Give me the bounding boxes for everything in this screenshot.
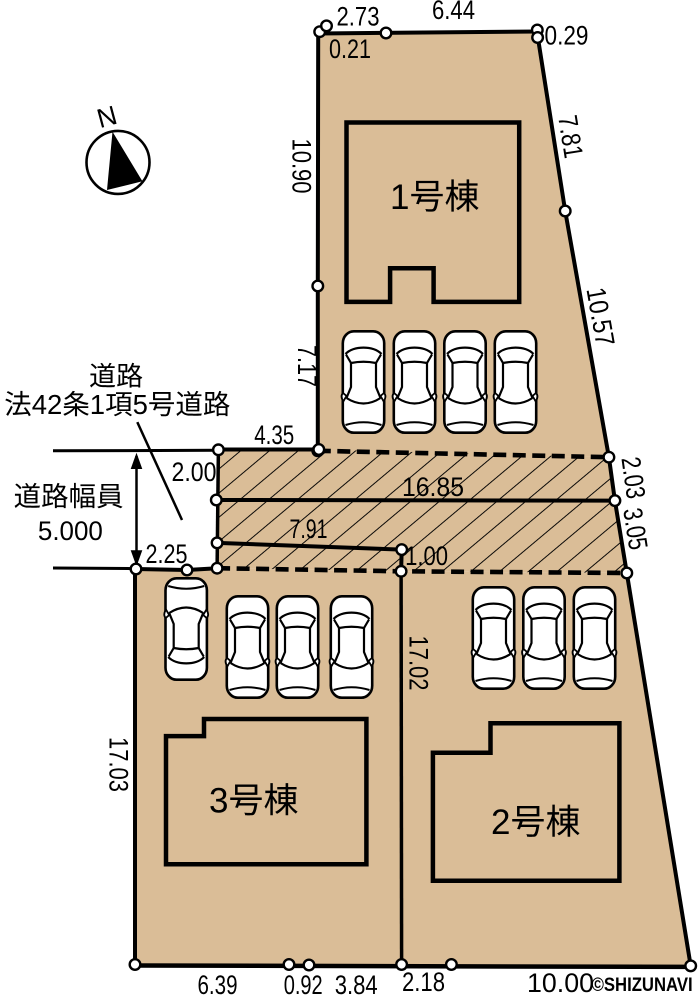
svg-text:6.39: 6.39	[198, 970, 238, 1000]
svg-text:0.92: 0.92	[284, 970, 323, 1000]
svg-text:10.00: 10.00	[527, 968, 594, 998]
svg-text:17.03: 17.03	[103, 737, 133, 792]
svg-text:7.91: 7.91	[290, 514, 328, 544]
svg-text:7.17: 7.17	[292, 345, 322, 387]
svg-text:0.29: 0.29	[545, 21, 589, 51]
svg-text:2.73: 2.73	[337, 2, 380, 32]
svg-text:1: 1	[390, 178, 409, 217]
svg-text:2.00: 2.00	[172, 457, 217, 487]
svg-text:2.25: 2.25	[146, 539, 188, 569]
svg-text:2: 2	[491, 803, 510, 842]
svg-text:16.85: 16.85	[402, 472, 464, 502]
svg-text:3: 3	[209, 782, 228, 821]
svg-text:3.84: 3.84	[335, 970, 378, 1000]
svg-text:0.21: 0.21	[329, 34, 371, 64]
svg-text:10.90: 10.90	[287, 139, 317, 194]
svg-text:6.44: 6.44	[432, 0, 475, 25]
svg-text:1: 1	[90, 389, 105, 420]
svg-text:2.18: 2.18	[402, 967, 445, 997]
svg-text:1.00: 1.00	[405, 541, 448, 571]
svg-text:©SHIZUNAVI: ©SHIZUNAVI	[592, 974, 693, 996]
svg-text:4.35: 4.35	[254, 420, 294, 450]
svg-text:42: 42	[32, 389, 63, 420]
svg-text:2.03: 2.03	[615, 455, 651, 501]
svg-text:17.02: 17.02	[403, 636, 433, 691]
svg-text:5.000: 5.000	[38, 516, 103, 546]
svg-text:5: 5	[133, 389, 148, 420]
